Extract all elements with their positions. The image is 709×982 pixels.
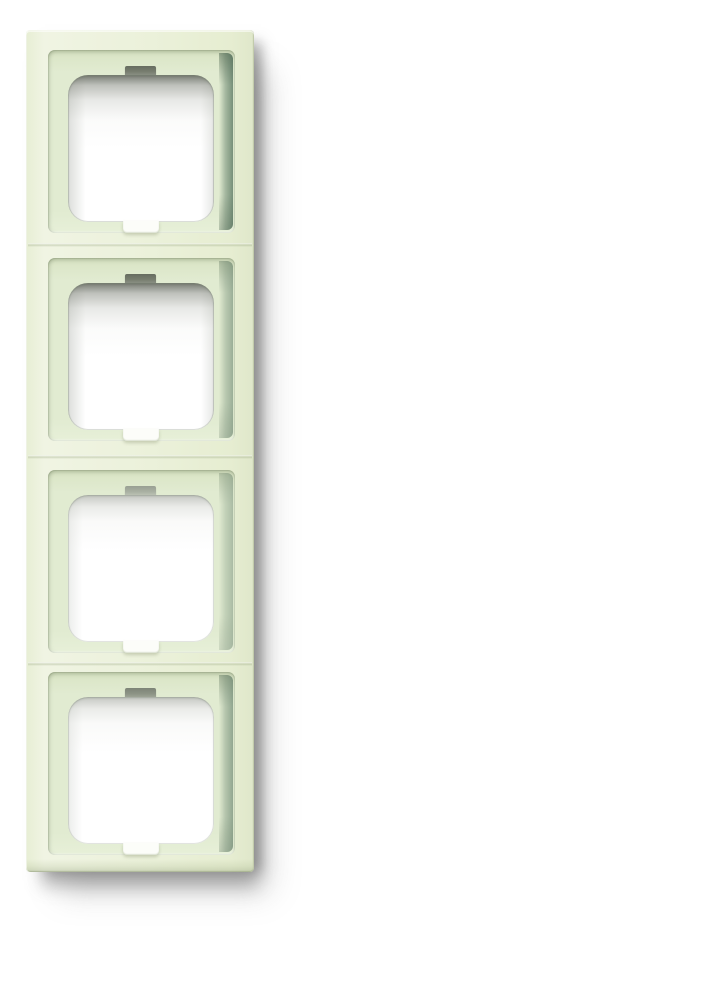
module-opening <box>68 283 214 430</box>
module-recess <box>48 258 235 441</box>
frame-seam <box>28 243 252 247</box>
recess-wall-shadow <box>219 53 233 230</box>
bottom-latch-notch <box>123 429 159 441</box>
recess-wall-shadow <box>219 261 233 438</box>
recess-wall-shadow <box>219 675 233 852</box>
module-opening <box>68 495 214 642</box>
module-recess <box>48 672 235 855</box>
module-opening <box>68 75 214 222</box>
frame-section <box>48 470 235 653</box>
module-recess <box>48 50 235 233</box>
module-recess <box>48 470 235 653</box>
frame-section <box>48 672 235 855</box>
frame-seam <box>28 455 252 459</box>
module-opening <box>68 697 214 844</box>
frame-section <box>48 50 235 233</box>
frame-seam <box>28 662 252 666</box>
bottom-latch-notch <box>123 843 159 855</box>
product-photo-background <box>0 0 709 982</box>
recess-wall-shadow <box>219 473 233 650</box>
bottom-latch-notch <box>123 641 159 653</box>
cover-frame <box>26 30 254 872</box>
frame-section <box>48 258 235 441</box>
bottom-latch-notch <box>123 221 159 233</box>
